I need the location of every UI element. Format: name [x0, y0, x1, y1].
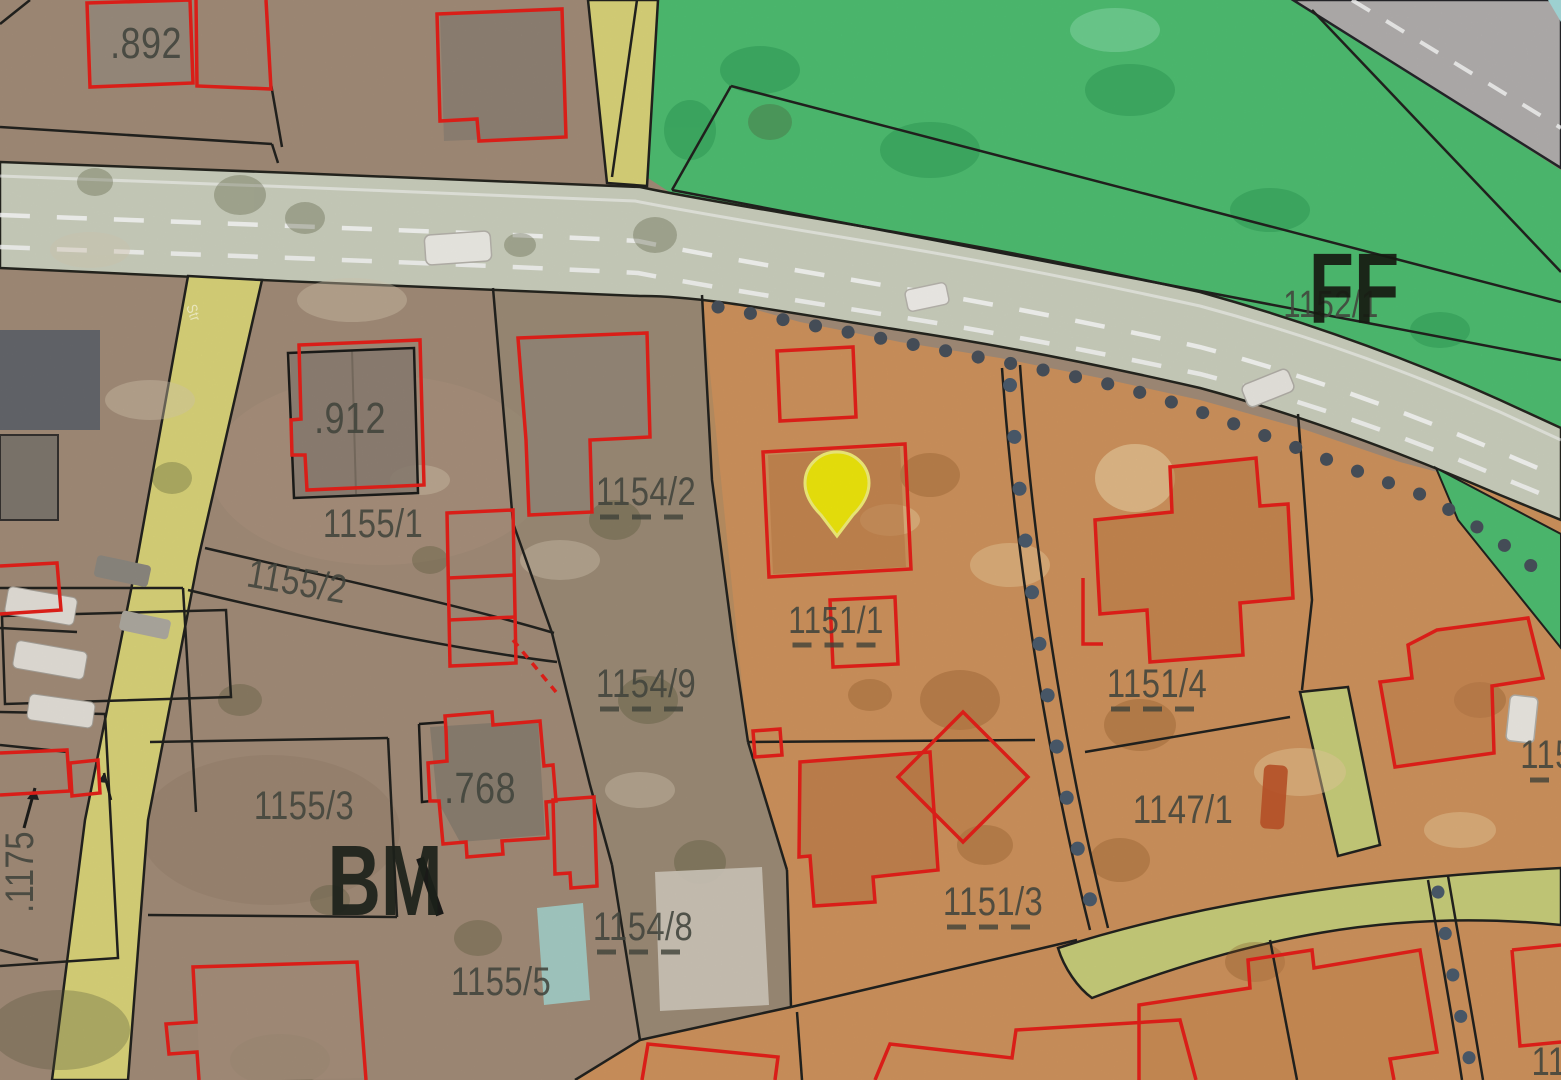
map-canvas[interactable] [0, 0, 1561, 1080]
map-viewport[interactable]: .892.9121155/11155/21154/21151/11154/9.7… [0, 0, 1561, 1080]
photo-grain [0, 0, 1561, 1080]
